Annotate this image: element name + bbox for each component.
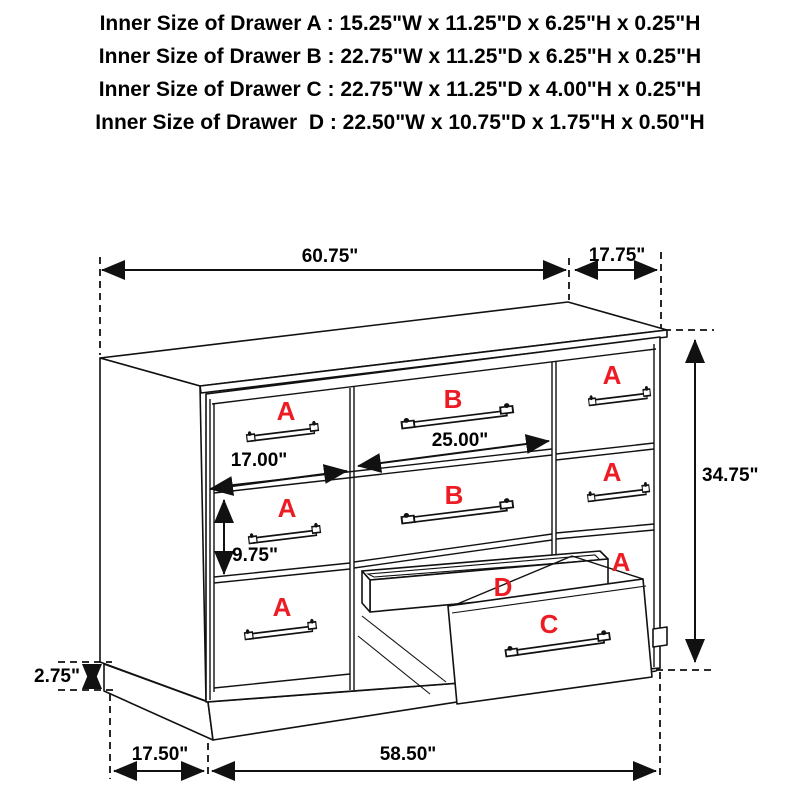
drawer-label-d: D — [494, 572, 513, 602]
drawer-label-b1: B — [444, 384, 463, 414]
height-dimension-group: 34.75" — [656, 330, 759, 670]
drawer-label-a3: A — [273, 592, 292, 622]
cabinet-left-side-panel — [100, 358, 206, 701]
drawer-label-a5: A — [603, 457, 622, 487]
drawer-label-a4: A — [603, 360, 622, 390]
dresser-dimension-diagram: 60.75" 17.75" — [0, 0, 800, 800]
drawer-label-c: C — [540, 609, 559, 639]
height-dimension-label: 34.75" — [702, 465, 759, 486]
drawer-a-height-label: 9.75" — [232, 545, 278, 566]
drawer-label-a6: A — [612, 547, 631, 577]
top-depth-dimension-label: 17.75" — [589, 245, 646, 266]
top-width-dimension-label: 60.75" — [302, 246, 359, 267]
base-width-label: 58.50" — [380, 744, 437, 765]
drawer-label-a2: A — [278, 493, 297, 523]
drawer-label-a1: A — [277, 396, 296, 426]
drawer-a-width-label: 17.00" — [231, 450, 288, 471]
drawer-b-width-label: 25.00" — [432, 430, 489, 451]
base-height-label: 2.75" — [34, 666, 80, 687]
base-depth-label: 17.50" — [132, 744, 189, 765]
drawer-label-b2: B — [445, 480, 464, 510]
right-foot-bracket — [653, 627, 667, 647]
